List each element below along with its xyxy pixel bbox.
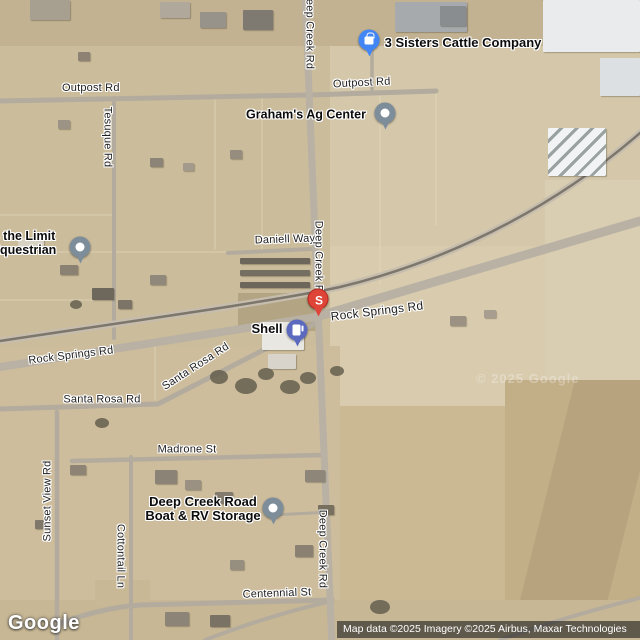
road-label-outpost-rd-east: Outpost Rd [333, 76, 391, 90]
road-label-santa-rosa-rd-diagonal: Santa Rosa Rd [161, 341, 232, 392]
search-result-pin-s[interactable]: S [308, 289, 329, 310]
building [548, 128, 606, 176]
building [150, 275, 166, 285]
building [295, 545, 313, 557]
pin-tail [364, 47, 374, 57]
poi-pin-grahams[interactable] [375, 103, 396, 124]
road-label-santa-rosa-rd-west: Santa Rosa Rd [63, 395, 140, 406]
shopping-bag-icon [365, 37, 374, 45]
building [118, 300, 132, 309]
building [240, 258, 310, 264]
building [450, 316, 466, 326]
building [243, 10, 273, 30]
building [230, 150, 242, 159]
poi-label-grahams[interactable]: Graham's Ag Center [246, 108, 366, 122]
poi-pin-equestrian[interactable] [70, 237, 91, 258]
road-label-outpost-rd-west: Outpost Rd [62, 83, 120, 94]
terrain-field [545, 180, 640, 380]
poi-label-line: Deep Creek Road [145, 495, 260, 509]
vegetation [300, 372, 316, 384]
building [600, 58, 640, 96]
building [305, 470, 325, 482]
building [440, 6, 466, 26]
poi-label-storage[interactable]: Deep Creek Road Boat & RV Storage [145, 495, 260, 523]
poi-pin-storage[interactable] [263, 498, 284, 519]
building [240, 282, 310, 288]
google-logo[interactable]: Google [8, 612, 80, 635]
poi-label-equestrian[interactable]: s the Limit Equestrian [0, 230, 68, 257]
building [240, 270, 310, 276]
building [165, 612, 189, 626]
pin-tail [268, 515, 278, 525]
road-label-cottontail-ln: Cottontail Ln [115, 524, 126, 588]
building [268, 354, 296, 369]
vegetation [280, 380, 300, 394]
road-label-deep-creek-rd-bottom: Deep Creek Rd [317, 510, 328, 588]
building [78, 52, 90, 61]
terrain-wash [514, 285, 640, 640]
map-attribution: Map data ©2025 Imagery ©2025 Airbus, Max… [337, 621, 640, 638]
poi-label-line: Boat & RV Storage [145, 509, 260, 523]
terrain-patch [0, 46, 330, 346]
building [58, 120, 70, 129]
terrain-hills [505, 380, 640, 640]
vegetation [258, 368, 274, 380]
road-label-deep-creek-rd-mid: Deep Creek Rd [313, 221, 324, 299]
poi-label-shell[interactable]: Shell [251, 322, 282, 336]
building [160, 2, 190, 18]
gas-pump-icon [293, 325, 301, 336]
vegetation [370, 600, 390, 614]
road-label-tesuque-rd: Tesuque Rd [102, 107, 113, 168]
building [210, 615, 230, 627]
vegetation [70, 300, 82, 309]
vegetation [235, 378, 257, 394]
building [183, 163, 194, 171]
pin-letter: S [309, 290, 330, 311]
poi-label-line: Equestrian [0, 244, 68, 258]
building [92, 288, 114, 300]
road-label-madrone-st: Madrone St [158, 445, 217, 456]
road-label-rock-springs-rd-west: Rock Springs Rd [28, 345, 114, 366]
poi-label-line: s the Limit [0, 230, 68, 244]
road-label-rock-springs-rd-east: Rock Springs Rd [330, 299, 424, 322]
road-label-sunset-view-rd: Sunset View Rd [43, 461, 54, 542]
building [484, 310, 496, 318]
pin-tail [380, 120, 390, 130]
vegetation [210, 370, 228, 384]
pin-tail [75, 254, 85, 264]
terrain-patch [340, 406, 640, 640]
vegetation [95, 418, 109, 428]
poi-label-3-sisters[interactable]: 3 Sisters Cattle Company [385, 36, 542, 50]
building [230, 560, 244, 570]
building [155, 470, 177, 484]
shopping-pin-3-sisters[interactable] [359, 30, 380, 51]
satellite-map-viewport[interactable]: © 2025 Google Outpost Rd Outpost Rd Tesu… [0, 0, 640, 640]
building [395, 2, 467, 32]
road-label-deep-creek-rd-top: Deep Creek Rd [304, 0, 315, 69]
building [185, 480, 201, 490]
imagery-watermark: © 2025 Google [476, 371, 580, 386]
building [30, 0, 70, 20]
vegetation [330, 366, 344, 376]
building [200, 12, 226, 28]
road-label-centennial-st: Centennial St [243, 587, 312, 600]
fuel-pin-shell[interactable] [287, 320, 308, 341]
building [543, 0, 640, 52]
building [150, 158, 163, 167]
pin-tail [292, 337, 302, 347]
road-label-daniell-way: Daniell Way [255, 233, 316, 246]
terrain-patch [0, 0, 640, 46]
building [70, 465, 86, 475]
building [60, 265, 78, 275]
